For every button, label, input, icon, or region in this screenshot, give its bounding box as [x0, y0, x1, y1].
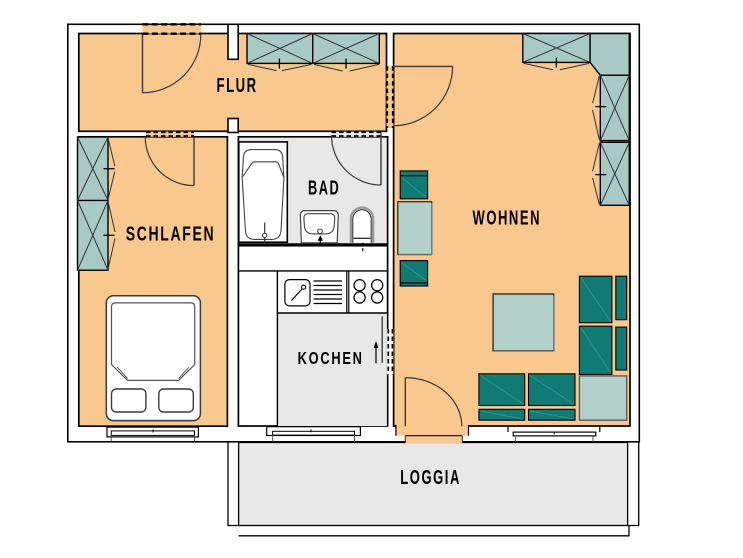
svg-text:LOGGIA: LOGGIA [400, 466, 461, 489]
svg-text:FLUR: FLUR [217, 74, 258, 96]
svg-text:SCHLAFEN: SCHLAFEN [126, 222, 216, 245]
svg-text:BAD: BAD [308, 177, 340, 200]
svg-text:WOHNEN: WOHNEN [473, 207, 542, 230]
svg-text:KOCHEN: KOCHEN [298, 349, 364, 368]
